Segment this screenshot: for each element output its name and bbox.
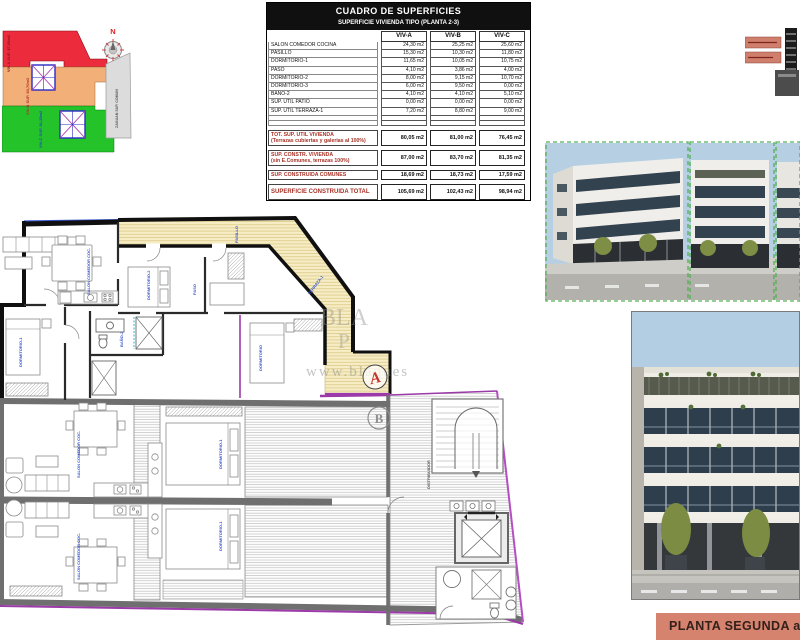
row-value: 25,25 m2 — [430, 42, 476, 50]
unit-a-badge: A — [363, 365, 387, 389]
room-label-dorm-2: DORMITORIO-2 — [146, 270, 151, 300]
table-row: DORMITORIO-28,00 m29,15 m210,70 m2 — [267, 75, 530, 83]
room-label-distribuidor: DISTRIBUIDOR — [426, 460, 431, 489]
stairwell — [432, 399, 503, 478]
furniture-lower-flat-1 — [6, 403, 242, 497]
render-building-front — [691, 160, 769, 268]
communal-bathroom — [436, 567, 516, 619]
north-compass-icon: N — [102, 27, 124, 61]
room-label-salon-a: SALON COMEDOR COC. — [86, 248, 91, 295]
galeria — [245, 407, 388, 497]
row-value: 3,86 m2 — [430, 67, 476, 75]
total-value: 18,69 m2 — [381, 170, 427, 180]
table-total-row: TOT. SUP. UTIL VIVIENDA(Terrazas cubiert… — [267, 130, 530, 146]
tree — [594, 237, 612, 255]
render-building-sliver — [777, 162, 800, 268]
table-row: SUP. ÚTIL PATIO0,00 m20,00 m20,00 m2 — [267, 99, 530, 107]
site-label-viv-b: VIV-B SUP. 83,70m2 — [25, 77, 30, 115]
total-label: SUP. CONSTR. VIVIENDA(sin E.Comunes, ter… — [268, 150, 378, 166]
column-header: VIV-C — [479, 31, 525, 42]
total-value: 17,59 m2 — [479, 170, 525, 180]
row-label — [268, 121, 378, 126]
row-value: 8,00 m2 — [381, 75, 427, 83]
svg-text:B: B — [375, 411, 384, 426]
room-label-dorm-low1: DORMITORIO-1 — [218, 439, 223, 469]
row-value: 8,80 m2 — [430, 108, 476, 116]
room-label-paso: PASO — [192, 284, 197, 295]
bed — [250, 323, 284, 383]
bed — [166, 423, 240, 485]
site-label-viv-a: VIV-A SUP. 87,00m2 — [6, 34, 11, 72]
window-band — [644, 405, 800, 434]
row-value: 0,00 m2 — [479, 99, 525, 107]
row-value: 24,30 m2 — [381, 42, 427, 50]
wardrobe — [294, 319, 322, 331]
row-value: 4,10 m2 — [430, 91, 476, 99]
areas-table-rows: SALON COMEDOR COCINA24,30 m225,25 m225,6… — [267, 42, 530, 126]
render-photo-strip — [545, 140, 800, 305]
row-value — [430, 121, 476, 126]
row-label: PASO — [268, 67, 378, 75]
window-band — [644, 444, 800, 473]
total-value: 18,73 m2 — [430, 170, 476, 180]
row-label: SUP. ÚTIL TERRAZA-1 — [268, 108, 378, 116]
svg-text:BLA: BLA — [320, 305, 369, 331]
room-label-dorm-b: DORMITORIO — [258, 345, 263, 371]
areas-table-columns: VIV-AVIV-BVIV-C — [267, 31, 530, 42]
room-label-salon-low2: SALON COMEDOR COC. — [76, 533, 81, 580]
watermark: BLA P www.blaques — [306, 305, 409, 380]
row-value: 9,15 m2 — [430, 75, 476, 83]
site-zone-viv-c — [2, 106, 114, 152]
row-value: 10,75 m2 — [479, 58, 525, 66]
row-value: 5,10 m2 — [479, 91, 525, 99]
room-label-dorm-a1: DORMITORIO-1 — [18, 337, 23, 367]
utility-meters — [450, 501, 495, 511]
row-value: 11,65 m2 — [381, 58, 427, 66]
svg-text:P: P — [338, 329, 350, 353]
table-spacer-row — [267, 121, 530, 126]
table-total-row: SUP. CONSTR. VIVIENDA(sin E.Comunes, ter… — [267, 150, 530, 166]
total-value: 87,00 m2 — [381, 150, 427, 166]
row-value: 9,00 m2 — [479, 108, 525, 116]
bed — [6, 319, 40, 375]
column-header: VIV-A — [381, 31, 427, 42]
door-arc — [147, 248, 226, 261]
column-header-spacer — [268, 31, 378, 42]
room-label-salon-low1: SALON COMEDOR COC. — [76, 431, 81, 478]
table-row: PASO4,10 m23,86 m24,00 m2 — [267, 67, 530, 75]
areas-table-title: CUADRO DE SUPERFICIES — [269, 6, 528, 17]
table-row: SUP. ÚTIL TERRAZA-17,20 m28,80 m29,00 m2 — [267, 108, 530, 116]
total-value: 81,35 m2 — [479, 150, 525, 166]
total-value: 80,05 m2 — [381, 130, 427, 146]
row-label: DORMITORIO-1 — [268, 58, 378, 66]
row-value: 0,00 m2 — [479, 83, 525, 91]
row-value: 10,30 m2 — [430, 50, 476, 58]
bed — [166, 509, 240, 569]
row-value: 7,20 m2 — [381, 108, 427, 116]
galeria — [163, 580, 243, 599]
row-value: 4,00 m2 — [479, 67, 525, 75]
svg-text:www.blaques: www.blaques — [306, 364, 409, 380]
total-label: TOT. SUP. UTIL VIVIENDA(Terrazas cubiert… — [268, 130, 378, 146]
tree — [639, 234, 657, 252]
row-value: 10,05 m2 — [430, 58, 476, 66]
section-diagram — [745, 28, 800, 98]
plan-title-bar: PLANTA SEGUNDA a — [656, 613, 800, 640]
table-row: SALON COMEDOR COCINA24,30 m225,25 m225,6… — [267, 42, 530, 50]
column-header: VIV-B — [430, 31, 476, 42]
site-label-zaguan: ZAGUAN SUP. COMUN — [115, 89, 119, 128]
facade-photo — [631, 311, 800, 600]
table-row: BAÑO-24,10 m24,10 m25,10 m2 — [267, 91, 530, 99]
areas-table-subtitle: SUPERFICIE VIVIENDA TIPO (PLANTA 2-3) — [269, 19, 528, 27]
row-value — [381, 121, 427, 126]
row-value: 15,30 m2 — [381, 50, 427, 58]
wardrobe — [166, 407, 242, 416]
table-row: DORMITORIO-36,00 m29,50 m20,00 m2 — [267, 83, 530, 91]
row-value: 11,80 m2 — [479, 50, 525, 58]
row-label: SALON COMEDOR COCINA — [268, 42, 378, 50]
wall — [0, 401, 390, 404]
wardrobe — [6, 383, 48, 396]
stair-core-symbol — [32, 65, 55, 90]
table-row: PASILLO15,30 m210,30 m211,80 m2 — [267, 50, 530, 58]
total-value: 83,70 m2 — [430, 150, 476, 166]
table-row: DORMITORIO-111,65 m210,05 m210,75 m2 — [267, 58, 530, 66]
room-label-pasillo: PASILLO — [234, 226, 239, 243]
elevator — [455, 513, 508, 563]
plan-sheet: N VIV-A SUP. 87,00m2 VIV-B SUP. 83,70m2 … — [0, 0, 800, 640]
areas-table-totals: TOT. SUP. UTIL VIVIENDA(Terrazas cubiert… — [267, 130, 530, 200]
wardrobe — [228, 253, 244, 279]
row-label: BAÑO-2 — [268, 91, 378, 99]
site-label-viv-c: VIV-C SUP. 81,35m2 — [38, 110, 43, 148]
row-value: 6,00 m2 — [381, 83, 427, 91]
galeria — [245, 505, 388, 597]
total-value: 76,45 m2 — [479, 130, 525, 146]
row-label: PASILLO — [268, 50, 378, 58]
floor-plan: BLA P www.blaques A B SALON COMEDOR COC.… — [0, 195, 530, 630]
row-value: 4,10 m2 — [381, 91, 427, 99]
shelf — [10, 586, 62, 596]
row-label: DORMITORIO-3 — [268, 83, 378, 91]
areas-table-header: CUADRO DE SUPERFICIES SUPERFICIE VIVIEND… — [267, 3, 530, 30]
room-label-dorm-low2: DORMITORIO-1 — [218, 521, 223, 551]
site-key-plan: N VIV-A SUP. 87,00m2 VIV-B SUP. 83,70m2 … — [2, 20, 137, 168]
render-building-angled — [553, 158, 683, 266]
row-value: 9,50 m2 — [430, 83, 476, 91]
boundary-purple — [320, 395, 390, 396]
row-value: 0,00 m2 — [381, 99, 427, 107]
table-total-row: SUP. CONSTRUIDA COMUNES18,69 m218,73 m21… — [267, 170, 530, 180]
row-label: DORMITORIO-2 — [268, 75, 378, 83]
areas-table: CUADRO DE SUPERFICIES SUPERFICIE VIVIEND… — [266, 2, 531, 201]
row-value: 0,00 m2 — [430, 99, 476, 107]
wall — [24, 222, 119, 224]
row-value: 10,70 m2 — [479, 75, 525, 83]
stair-core-symbol — [60, 111, 85, 138]
row-value — [479, 121, 525, 126]
room-label-bano: BAÑO-2 — [119, 331, 124, 347]
north-label: N — [110, 27, 115, 36]
row-value: 4,10 m2 — [381, 67, 427, 75]
site-zone-viv-a — [3, 31, 107, 67]
row-label: SUP. ÚTIL PATIO — [268, 99, 378, 107]
total-label: SUP. CONSTRUIDA COMUNES — [268, 170, 378, 180]
total-value: 81,00 m2 — [430, 130, 476, 146]
row-value: 25,60 m2 — [479, 42, 525, 50]
